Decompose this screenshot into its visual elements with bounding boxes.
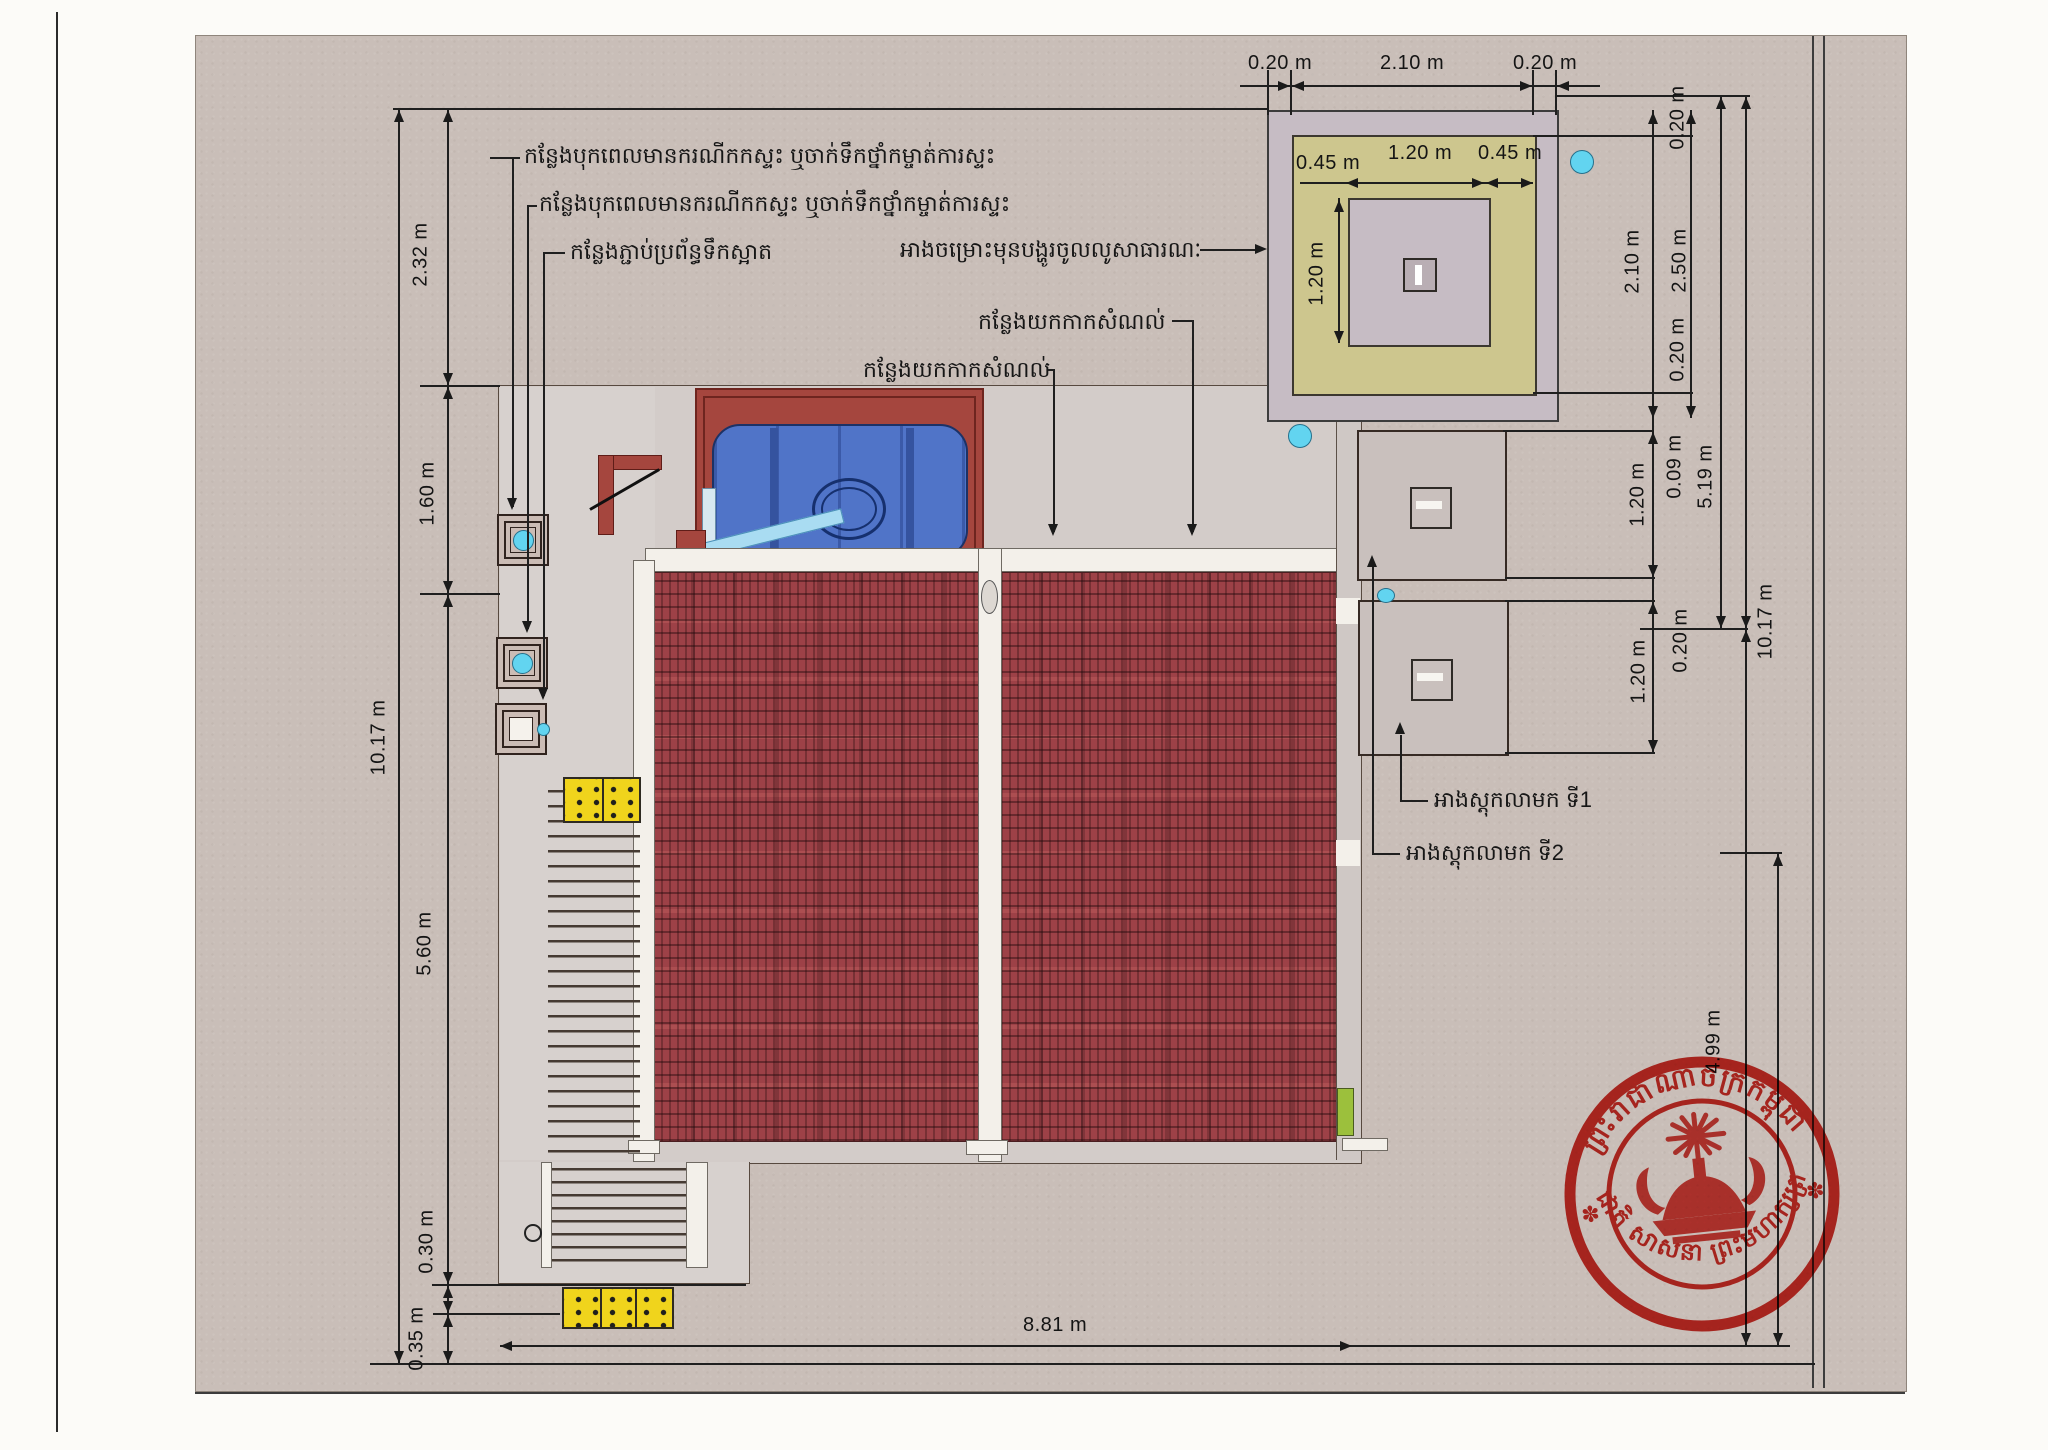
dimension-label: 0.09 m xyxy=(1664,434,1687,498)
extension-line xyxy=(1555,70,1557,115)
reference-line xyxy=(1505,600,1655,602)
dimension-line xyxy=(447,108,449,1365)
leader-line xyxy=(490,157,520,159)
drain-box-3 xyxy=(495,703,547,755)
stair-rail xyxy=(686,1162,708,1268)
annotation-cleanout-1: កន្លែងបុកពេលមានករណីកកស្ទះ ឬចាក់ទឹកថ្នាំក… xyxy=(524,142,995,174)
tactile-mat-upper xyxy=(563,777,641,823)
leader-line xyxy=(1372,853,1400,855)
annotation-cleanout-2: កន្លែងបុកពេលមានករណីកកស្ទះ ឬចាក់ទឹកថ្នាំក… xyxy=(539,190,1010,222)
tactile-mat-lower xyxy=(562,1287,674,1329)
extension-line xyxy=(1290,70,1292,115)
drain-outlet xyxy=(1288,424,1312,448)
roof-left-panel xyxy=(652,572,980,1142)
dimension-label: 5.60 m xyxy=(414,911,437,975)
dimension-label: 10.17 m xyxy=(367,700,390,776)
valve-box-center xyxy=(509,717,533,741)
leader-line xyxy=(1200,249,1258,251)
dimension-label: 1.60 m xyxy=(417,461,440,525)
sheet-frame-bottom xyxy=(195,1392,1905,1394)
ridge-finial xyxy=(981,580,998,614)
reference-line xyxy=(432,1284,746,1286)
valve xyxy=(676,530,706,549)
roof-right-panel xyxy=(1000,572,1338,1142)
dimension-label: 5.19 m xyxy=(1695,444,1718,508)
reference-line xyxy=(433,1313,560,1315)
corner-fixture xyxy=(1342,1138,1388,1151)
dimension-label: 0.20 m xyxy=(1670,608,1693,672)
dimension-label: 0.45 m xyxy=(1296,152,1360,175)
leader-line xyxy=(1053,369,1055,532)
extension-line xyxy=(1532,70,1534,115)
reference-line xyxy=(393,108,1267,110)
dimension-label: 1.20 m xyxy=(1628,639,1651,703)
dimension-label: 1.20 m xyxy=(1306,241,1329,305)
tank-manhole xyxy=(812,478,886,540)
stair-rail xyxy=(541,1162,552,1268)
leader-line xyxy=(527,205,529,629)
drain-outlet xyxy=(512,653,533,674)
dimension-label: 1.20 m xyxy=(1627,462,1650,526)
dimension-label: 2.32 m xyxy=(410,222,433,286)
dimension-line xyxy=(1720,95,1722,628)
dimension-line xyxy=(398,108,400,1365)
ridge-bottom-fixture xyxy=(966,1140,1008,1155)
dimension-label: 2.10 m xyxy=(1380,52,1444,75)
dimension-label: 0.20 m xyxy=(1513,52,1577,75)
leader-line xyxy=(1372,565,1374,855)
leader-line xyxy=(512,157,514,507)
band-gap xyxy=(1336,598,1360,624)
reference-line xyxy=(370,1363,1815,1365)
scanned-site-plan-sheet: 2.32 m 1.60 m 10.17 m 5.60 m 0.30 m 0.35… xyxy=(0,0,2048,1450)
dimension-label: 0.35 m xyxy=(406,1306,429,1370)
septic-tank-upper xyxy=(1357,430,1507,581)
dimension-line xyxy=(1338,198,1340,343)
dimension-label: 0.20 m xyxy=(1248,52,1312,75)
drain-outlet xyxy=(1377,588,1395,603)
reference-line xyxy=(1640,628,1748,630)
drain-box-2 xyxy=(496,637,548,689)
reference-line xyxy=(1533,392,1693,394)
reference-line xyxy=(1503,430,1653,432)
ridge-strip xyxy=(978,548,1002,1162)
annotation-debris-lower: កន្លែងយកកាកសំណល់ xyxy=(863,356,1050,388)
dimension-label: 0.45 m xyxy=(1478,142,1542,165)
annotation-septic-1: អាងស្តុកលាមក ទី1 xyxy=(1434,786,1592,818)
dimension-line xyxy=(1300,182,1533,184)
footing-column xyxy=(1403,258,1437,292)
drain-outlet xyxy=(513,530,534,551)
band-gap xyxy=(1336,840,1360,866)
official-red-stamp: ព្រះរាជាណាចក្រកម្ពុជា ជាតិ សាសនា ព្រះមហា… xyxy=(1537,1029,1867,1359)
reference-line xyxy=(420,593,500,595)
dimension-label: 0.20 m xyxy=(1667,85,1690,149)
dimension-label: 8.81 m xyxy=(1023,1314,1087,1337)
leader-line xyxy=(1400,735,1402,802)
stair-flight-upper xyxy=(548,790,640,1160)
dimension-label: 0.20 m xyxy=(1667,317,1690,381)
dimension-label: 2.10 m xyxy=(1622,229,1645,293)
dimension-label: 1.20 m xyxy=(1388,142,1452,165)
dimension-label: 0.30 m xyxy=(416,1209,439,1273)
drain-outlet xyxy=(1570,150,1594,174)
dimension-label: 2.50 m xyxy=(1669,228,1692,292)
annotation-debris-upper: កន្លែងយកកាកសំណល់ xyxy=(978,308,1165,340)
dimension-label: 10.17 m xyxy=(1754,584,1777,660)
drain-box-1 xyxy=(497,514,549,566)
stamp-rosette-left: ✽ xyxy=(1580,1201,1601,1228)
leader-line xyxy=(543,252,565,254)
annotation-septic-2: អាងស្តុកលាមក ទី2 xyxy=(1406,839,1564,871)
leader-line xyxy=(1400,800,1428,802)
extension-line xyxy=(1267,70,1269,115)
leader-line xyxy=(1172,320,1194,322)
drain-outlet xyxy=(537,723,550,736)
annotation-filter-tank: អាងចម្រោះមុនបង្ហូរចូលលូសាធារណៈ xyxy=(900,236,1201,268)
annotation-water-connection: កន្លែងភ្ជាប់ប្រព័ន្ធទឹកស្អាត xyxy=(570,238,772,270)
stamp-svg: ព្រះរាជាណាចក្រកម្ពុជា ជាតិ សាសនា ព្រះមហា… xyxy=(1537,1029,1867,1359)
grass-patch xyxy=(1337,1088,1354,1136)
leader-line xyxy=(1192,320,1194,532)
stamp-rosette-right: ✽ xyxy=(1805,1177,1826,1204)
septic-tank-lower xyxy=(1358,600,1509,756)
reference-line xyxy=(420,385,500,387)
tank-band xyxy=(906,428,914,550)
reference-line xyxy=(1505,752,1655,754)
stair-flight-lower xyxy=(550,1168,686,1264)
reference-line xyxy=(1505,577,1655,579)
sheet-frame-left xyxy=(56,12,58,1432)
post-circle xyxy=(524,1224,542,1242)
leader-line xyxy=(543,252,545,696)
